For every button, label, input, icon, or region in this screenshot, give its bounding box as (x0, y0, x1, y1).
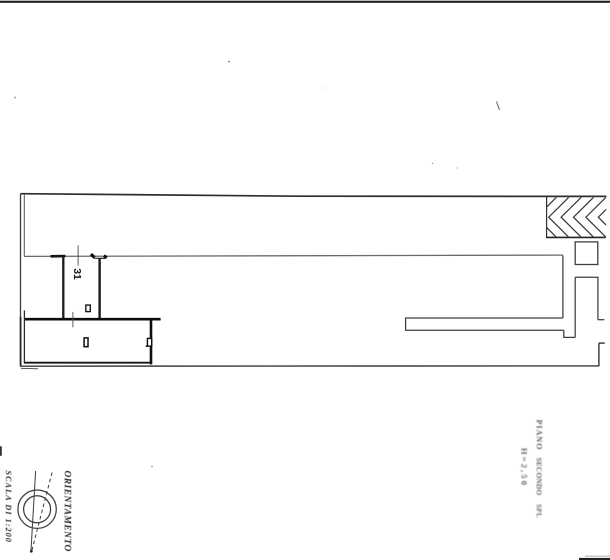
svg-text:SCALA DI 1:200: SCALA DI 1:200 (4, 471, 13, 543)
svg-text:H=2,50: H=2,50 (520, 448, 530, 487)
svg-text:SPL: SPL (535, 504, 543, 518)
svg-text:PIANO: PIANO (535, 420, 544, 451)
svg-text:31: 31 (71, 268, 82, 280)
svg-text:ORIENTAMENTO: ORIENTAMENTO (62, 471, 72, 552)
svg-text:SECONDO: SECONDO (535, 458, 544, 496)
